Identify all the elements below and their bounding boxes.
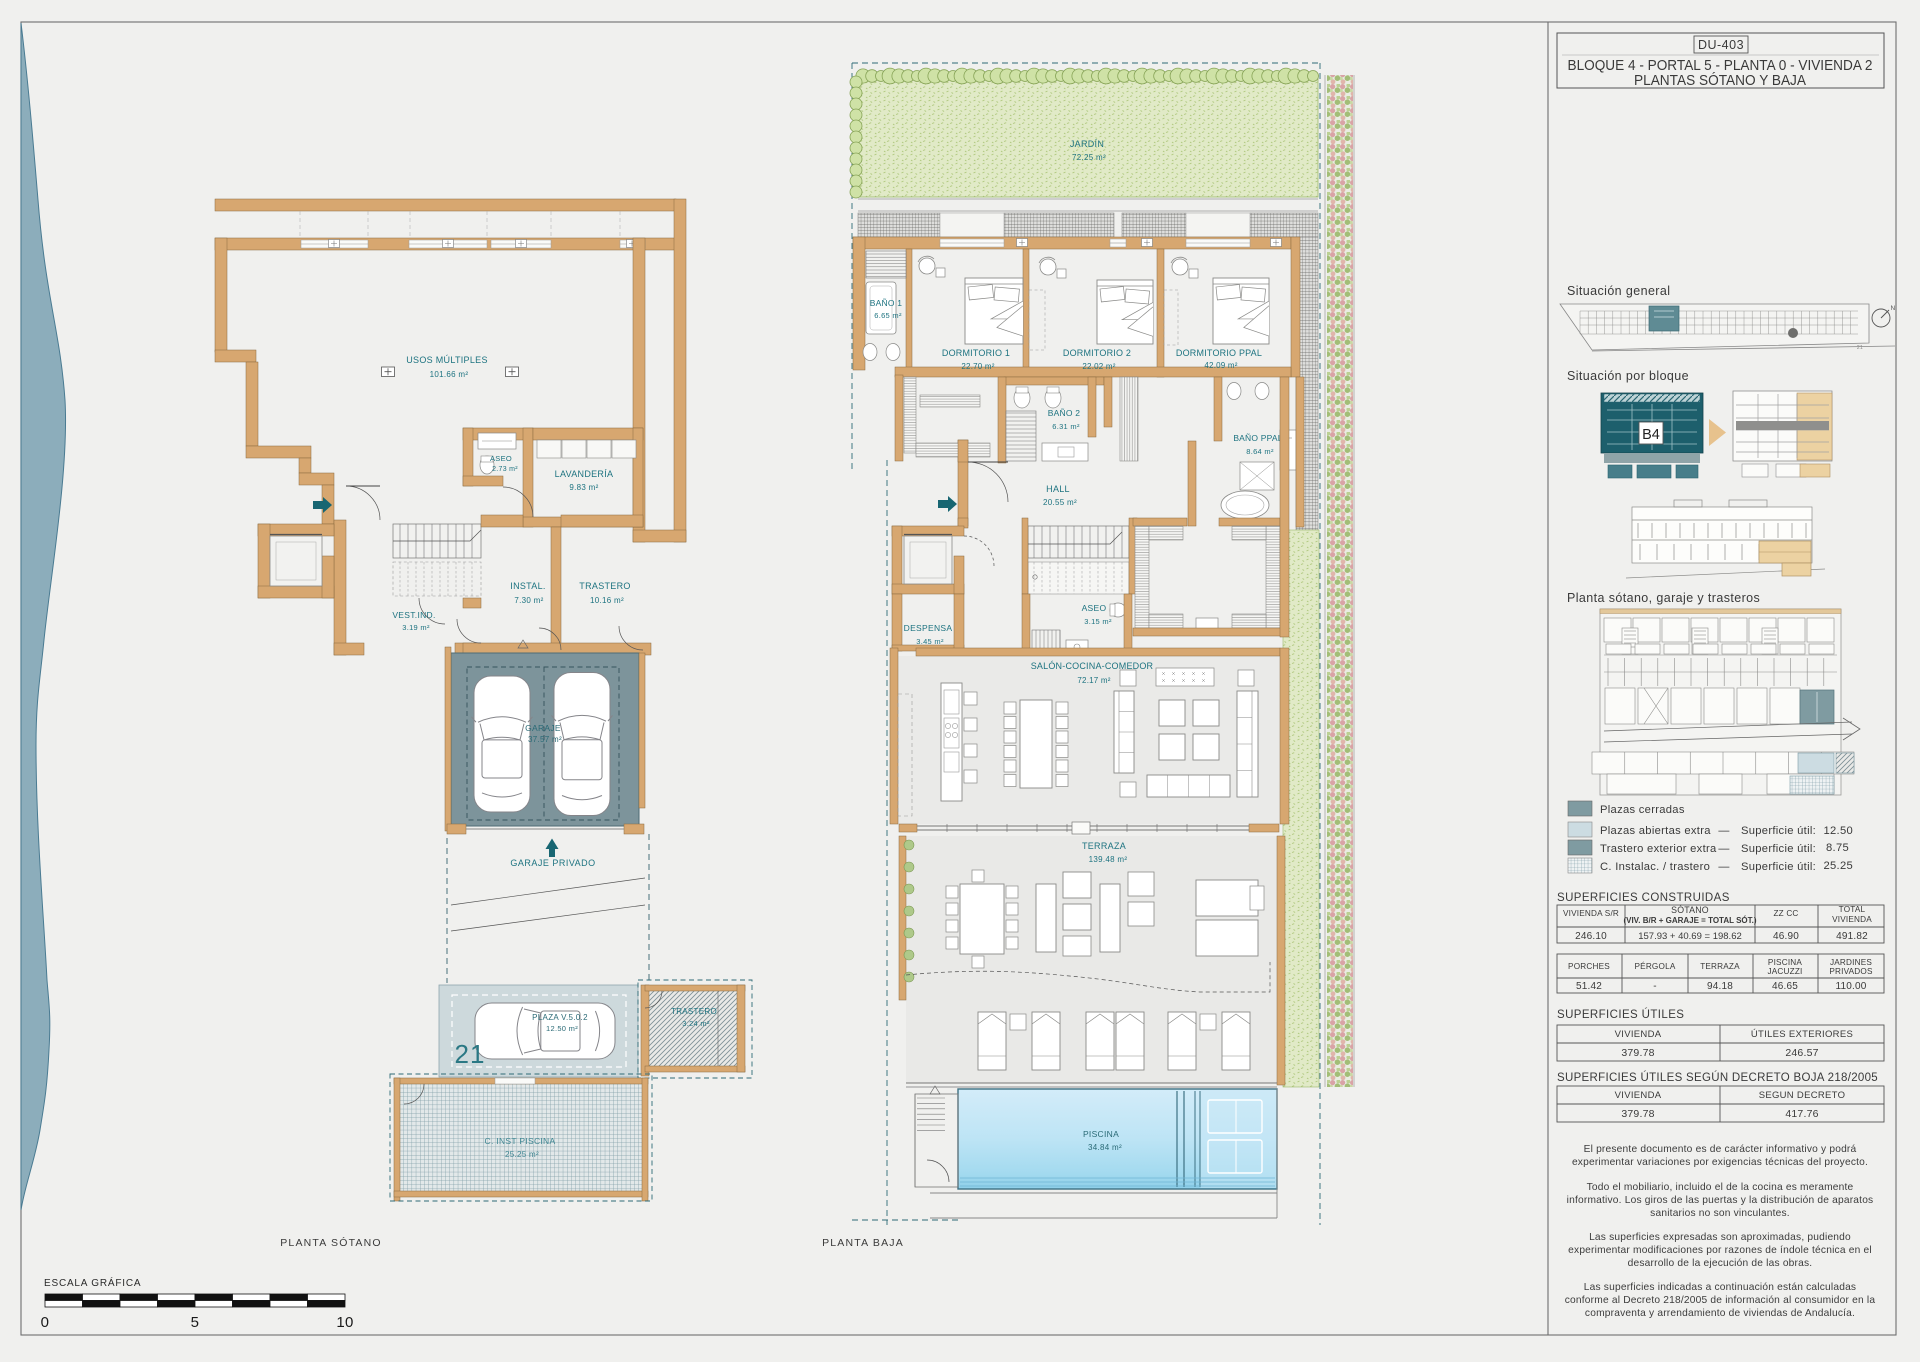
svg-text:Planta sótano, garaje y traste: Planta sótano, garaje y trasteros bbox=[1567, 591, 1760, 605]
svg-text:7.30 m²: 7.30 m² bbox=[514, 596, 543, 605]
svg-text:(VIV. B/R + GARAJE = TOTAL SÓT: (VIV. B/R + GARAJE = TOTAL SÓT.) bbox=[1623, 916, 1756, 925]
svg-text:3.19 m²: 3.19 m² bbox=[402, 623, 430, 632]
svg-text:JARDÍN: JARDÍN bbox=[1070, 139, 1104, 149]
svg-text:46.90: 46.90 bbox=[1773, 931, 1799, 942]
svg-text:B4: B4 bbox=[1642, 427, 1660, 443]
svg-text:Las superficies expresadas son: Las superficies expresadas son aproximad… bbox=[1589, 1232, 1851, 1243]
svg-text:Trastero exterior extra: Trastero exterior extra bbox=[1600, 843, 1717, 855]
svg-text:El presente documento es de ca: El presente documento es de carácter inf… bbox=[1584, 1144, 1857, 1155]
svg-text:sanitarios no son vinculantes.: sanitarios no son vinculantes. bbox=[1650, 1208, 1790, 1219]
svg-text:22.70 m²: 22.70 m² bbox=[961, 362, 994, 371]
svg-text:JARDINES: JARDINES bbox=[1830, 958, 1872, 967]
svg-text:BAÑO 1: BAÑO 1 bbox=[870, 298, 902, 308]
svg-text:SEGUN DECRETO: SEGUN DECRETO bbox=[1759, 1090, 1846, 1101]
svg-text:—: — bbox=[1718, 861, 1729, 873]
svg-text:VIVIENDA S/R: VIVIENDA S/R bbox=[1563, 909, 1619, 918]
svg-text:desarrollo de la ejecución de: desarrollo de la ejecución de las obras. bbox=[1628, 1258, 1813, 1269]
svg-text:VIVIENDA: VIVIENDA bbox=[1615, 1090, 1662, 1101]
svg-text:VIVIENDA: VIVIENDA bbox=[1832, 915, 1872, 924]
svg-text:PRIVADOS: PRIVADOS bbox=[1829, 967, 1873, 976]
svg-text:INSTAL.: INSTAL. bbox=[510, 581, 545, 591]
svg-text:6.31 m²: 6.31 m² bbox=[1052, 422, 1080, 431]
svg-text:DORMITORIO 1: DORMITORIO 1 bbox=[942, 348, 1010, 358]
svg-text:246.57: 246.57 bbox=[1785, 1047, 1818, 1059]
svg-text:10: 10 bbox=[336, 1314, 353, 1331]
svg-text:BAÑO 2: BAÑO 2 bbox=[1048, 408, 1080, 418]
svg-text:DORMITORIO 2: DORMITORIO 2 bbox=[1063, 348, 1131, 358]
svg-text:379.78: 379.78 bbox=[1621, 1108, 1654, 1120]
svg-text:ESCALA GRÁFICA: ESCALA GRÁFICA bbox=[44, 1276, 141, 1289]
svg-text:SUPERFICIES CONSTRUIDAS: SUPERFICIES CONSTRUIDAS bbox=[1557, 892, 1730, 904]
svg-text:DESPENSA: DESPENSA bbox=[904, 623, 953, 633]
svg-text:Las superficies indicadas a co: Las superficies indicadas a continuación… bbox=[1584, 1282, 1856, 1293]
svg-text:informativo. Los giros de las: informativo. Los giros de las puertas y … bbox=[1567, 1195, 1874, 1206]
svg-text:PLANTA SÓTANO: PLANTA SÓTANO bbox=[280, 1236, 382, 1249]
svg-text:TERRAZA: TERRAZA bbox=[1700, 962, 1740, 971]
svg-text:3.15 m²: 3.15 m² bbox=[1084, 617, 1112, 626]
svg-text:94.18: 94.18 bbox=[1707, 981, 1733, 992]
svg-text:conforme al Decreto 218/2005 d: conforme al Decreto 218/2005 de informac… bbox=[1565, 1295, 1876, 1306]
svg-text:PLANTAS SÓTANO Y BAJA: PLANTAS SÓTANO Y BAJA bbox=[1634, 72, 1806, 89]
svg-text:Situación general: Situación general bbox=[1567, 284, 1670, 298]
svg-text:C. Instalac. / trastero: C. Instalac. / trastero bbox=[1600, 861, 1710, 873]
svg-text:Superficie útil:: Superficie útil: bbox=[1741, 843, 1816, 855]
svg-text:BAÑO PPAL: BAÑO PPAL bbox=[1233, 433, 1282, 443]
svg-text:SUPERFICIES ÚTILES SEGÚN DECRE: SUPERFICIES ÚTILES SEGÚN DECRETO BOJA 21… bbox=[1557, 1071, 1878, 1084]
svg-text:TRASTERO: TRASTERO bbox=[579, 581, 630, 591]
svg-text:—: — bbox=[1718, 843, 1729, 855]
svg-text:BLOQUE 4 - PORTAL 5 - PLANTA 0: BLOQUE 4 - PORTAL 5 - PLANTA 0 - VIVIEND… bbox=[1568, 58, 1873, 74]
svg-text:8.75: 8.75 bbox=[1826, 842, 1849, 854]
svg-text:DU-403: DU-403 bbox=[1698, 38, 1744, 52]
svg-text:experimentar modificaciones po: experimentar modificaciones por razones … bbox=[1568, 1245, 1872, 1256]
svg-text:20.55 m²: 20.55 m² bbox=[1043, 498, 1077, 507]
svg-text:22.02 m²: 22.02 m² bbox=[1082, 362, 1115, 371]
svg-text:5: 5 bbox=[191, 1314, 200, 1331]
svg-text:N: N bbox=[1891, 305, 1896, 312]
svg-text:21: 21 bbox=[455, 1039, 486, 1069]
svg-text:42.09 m²: 42.09 m² bbox=[1204, 361, 1237, 370]
svg-text:3.45 m²: 3.45 m² bbox=[916, 637, 944, 646]
svg-text:3.24 m²: 3.24 m² bbox=[682, 1019, 710, 1028]
svg-text:ASEO: ASEO bbox=[490, 454, 512, 463]
svg-text:PISCINA: PISCINA bbox=[1083, 1129, 1119, 1139]
svg-text:6.65 m²: 6.65 m² bbox=[874, 311, 902, 320]
svg-text:9.83 m²: 9.83 m² bbox=[569, 483, 598, 492]
svg-text:JACUZZI: JACUZZI bbox=[1767, 967, 1802, 976]
svg-text:C. INST PISCINA: C. INST PISCINA bbox=[485, 1136, 556, 1146]
svg-text:SÓTANO: SÓTANO bbox=[1671, 905, 1709, 915]
svg-text:246.10: 246.10 bbox=[1575, 931, 1607, 942]
svg-text:34.84 m²: 34.84 m² bbox=[1088, 1143, 1122, 1152]
svg-text:72.17 m²: 72.17 m² bbox=[1077, 676, 1110, 685]
svg-text:Superficie útil:: Superficie útil: bbox=[1741, 825, 1816, 837]
svg-text:experimentar variaciones por e: experimentar variaciones por exigencias … bbox=[1572, 1157, 1868, 1168]
svg-text:Superficie útil:: Superficie útil: bbox=[1741, 861, 1816, 873]
svg-text:-: - bbox=[1653, 981, 1657, 992]
svg-text:Todo el mobiliario, incluido e: Todo el mobiliario, incluido el de la co… bbox=[1587, 1182, 1854, 1193]
svg-text:SUPERFICIES ÚTILES: SUPERFICIES ÚTILES bbox=[1557, 1008, 1684, 1021]
svg-text:10.16 m²: 10.16 m² bbox=[590, 596, 624, 605]
svg-text:0: 0 bbox=[41, 1314, 50, 1331]
svg-text:compraventa y arrendamiento d: compraventa y arrendamiento de viviendas… bbox=[1585, 1308, 1855, 1319]
svg-text:46.65: 46.65 bbox=[1772, 981, 1798, 992]
svg-text:LAVANDERÍA: LAVANDERÍA bbox=[555, 469, 614, 479]
svg-text:USOS MÚLTIPLES: USOS MÚLTIPLES bbox=[406, 355, 488, 365]
svg-text:ÚTILES EXTERIORES: ÚTILES EXTERIORES bbox=[1751, 1029, 1853, 1040]
svg-text:GARAJE PRIVADO: GARAJE PRIVADO bbox=[510, 858, 595, 868]
svg-text:GARAJE: GARAJE bbox=[525, 723, 561, 733]
svg-text:101.66 m²: 101.66 m² bbox=[430, 370, 469, 379]
svg-text:25.25: 25.25 bbox=[1824, 860, 1854, 872]
svg-text:Plazas abiertas extra: Plazas abiertas extra bbox=[1600, 825, 1711, 837]
svg-text:139.48 m²: 139.48 m² bbox=[1089, 855, 1128, 864]
svg-text:37.57 m²: 37.57 m² bbox=[528, 735, 562, 744]
svg-text:—: — bbox=[1718, 825, 1729, 837]
svg-text:21: 21 bbox=[1857, 345, 1863, 351]
svg-text:TRASTERO: TRASTERO bbox=[671, 1007, 717, 1016]
svg-text:DORMITORIO PPAL: DORMITORIO PPAL bbox=[1176, 348, 1262, 358]
svg-text:72.25 m²: 72.25 m² bbox=[1072, 153, 1106, 162]
svg-text:PORCHES: PORCHES bbox=[1568, 962, 1610, 971]
svg-text:ASEO: ASEO bbox=[1082, 603, 1107, 613]
svg-text:110.00: 110.00 bbox=[1835, 981, 1866, 992]
svg-text:PISCINA: PISCINA bbox=[1768, 958, 1802, 967]
svg-text:157.93 + 40.69 = 198.62: 157.93 + 40.69 = 198.62 bbox=[1638, 931, 1742, 942]
svg-text:379.78: 379.78 bbox=[1621, 1047, 1654, 1059]
svg-text:HALL: HALL bbox=[1046, 484, 1070, 494]
svg-text:Situación por bloque: Situación por bloque bbox=[1567, 369, 1689, 383]
svg-text:PLAZA V.5.0.2: PLAZA V.5.0.2 bbox=[532, 1013, 588, 1022]
svg-text:51.42: 51.42 bbox=[1576, 981, 1602, 992]
svg-text:SALÓN-COCINA-COMEDOR: SALÓN-COCINA-COMEDOR bbox=[1031, 661, 1154, 671]
svg-text:12.50 m²: 12.50 m² bbox=[546, 1024, 578, 1033]
svg-text:ZZ CC: ZZ CC bbox=[1773, 909, 1798, 918]
svg-text:TOTAL: TOTAL bbox=[1839, 905, 1866, 914]
svg-text:PÉRGOLA: PÉRGOLA bbox=[1635, 961, 1676, 971]
svg-text:8.64 m²: 8.64 m² bbox=[1246, 447, 1274, 456]
svg-text:12.50: 12.50 bbox=[1824, 825, 1854, 837]
svg-text:PLANTA BAJA: PLANTA BAJA bbox=[822, 1237, 904, 1249]
svg-text:2.73 m²: 2.73 m² bbox=[492, 466, 518, 473]
svg-text:TERRAZA: TERRAZA bbox=[1082, 841, 1126, 851]
svg-text:417.76: 417.76 bbox=[1785, 1108, 1818, 1120]
svg-text:491.82: 491.82 bbox=[1836, 931, 1868, 942]
svg-text:Plazas cerradas: Plazas cerradas bbox=[1600, 804, 1685, 816]
svg-text:25.25 m²: 25.25 m² bbox=[505, 1150, 539, 1159]
svg-text:VIVIENDA: VIVIENDA bbox=[1615, 1029, 1662, 1040]
